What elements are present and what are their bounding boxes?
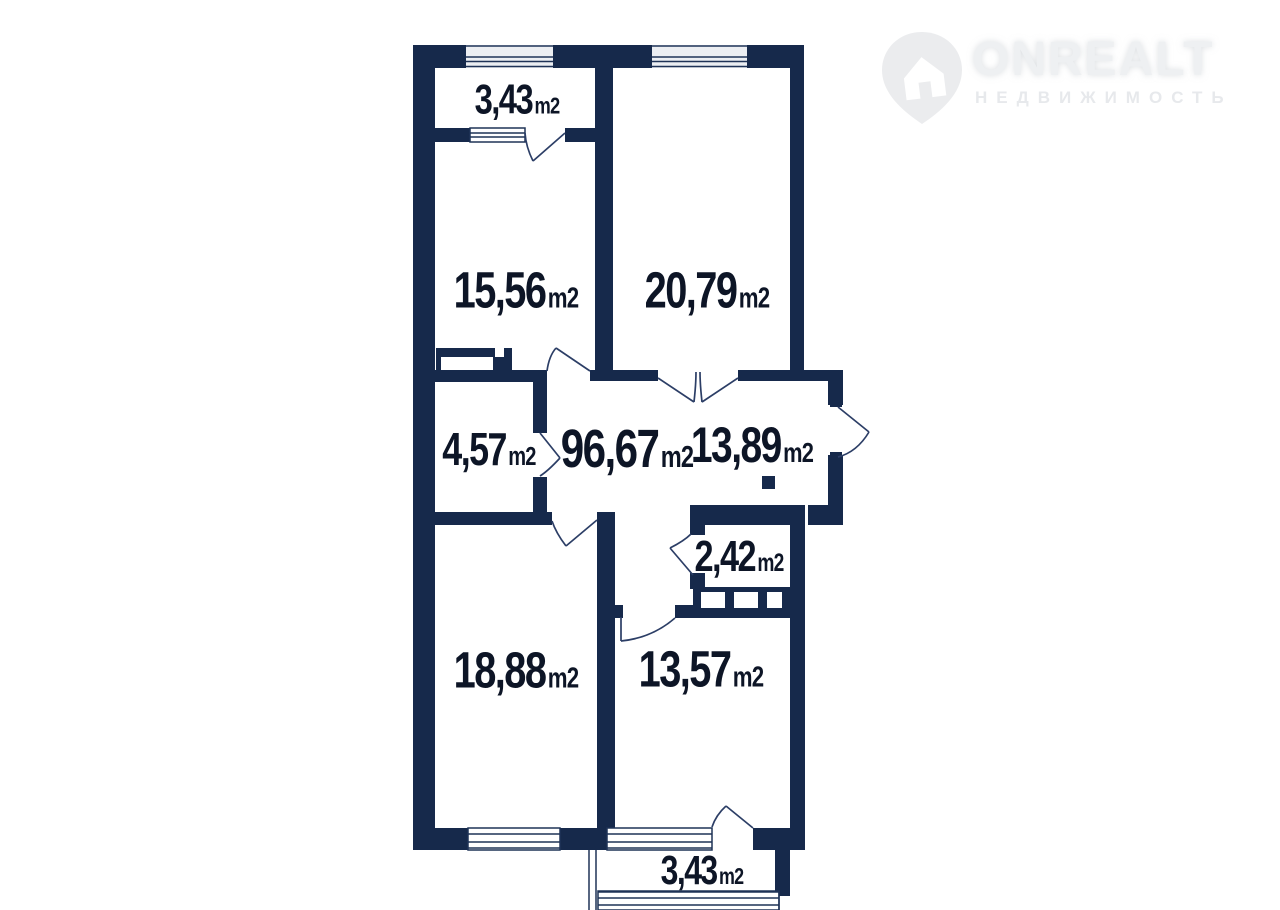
window <box>466 45 553 68</box>
area-value: 4,57 <box>442 423 506 475</box>
area-unit: m2 <box>508 443 535 471</box>
area-label-balcony-top: 3,43m2 <box>475 78 560 120</box>
area-label-total: 96,67m2 <box>561 422 693 476</box>
duct-niche <box>436 348 512 381</box>
area-unit: m2 <box>757 550 783 577</box>
duct-square <box>762 476 775 489</box>
outer-wall-top <box>553 45 652 68</box>
wall-between-rooms <box>595 68 613 372</box>
area-unit: m2 <box>661 441 694 474</box>
area-value: 96,67 <box>561 419 659 479</box>
area-unit: m2 <box>739 282 770 314</box>
hall-top-wall <box>738 370 843 381</box>
area-value: 13,57 <box>639 640 731 697</box>
entrance-wall-bottom <box>808 505 843 525</box>
door-jamb <box>830 401 842 407</box>
area-unit: m2 <box>548 662 579 694</box>
area-unit: m2 <box>783 437 813 468</box>
balcony-top-wall <box>435 128 470 142</box>
outer-wall-left <box>413 45 435 850</box>
wall-wc-right <box>533 477 547 514</box>
area-label-room-18-88: 18,88m2 <box>454 644 579 695</box>
area-label-room-4-57: 4,57m2 <box>442 426 535 472</box>
area-unit: m2 <box>534 92 559 118</box>
wall-cap <box>590 370 658 381</box>
area-label-room-13-57: 13,57m2 <box>639 643 764 694</box>
door-swing <box>712 806 753 828</box>
area-label-hall-13-89: 13,89m2 <box>691 420 813 470</box>
entrance-door-swing <box>838 407 869 457</box>
area-label-balcony-bottom: 3,43m2 <box>661 850 744 891</box>
area-unit: m2 <box>719 863 743 889</box>
balcony-wall-right <box>775 850 790 896</box>
window <box>470 128 525 142</box>
area-value: 20,79 <box>645 261 737 318</box>
outer-wall-bottom <box>753 828 805 850</box>
area-unit: m2 <box>733 661 764 693</box>
door-swing <box>658 372 696 402</box>
door-swings <box>525 133 869 828</box>
door-swing <box>540 433 560 476</box>
wall-between-rooms-lower <box>597 512 615 828</box>
area-unit: m2 <box>548 282 579 314</box>
door-swing <box>700 372 738 402</box>
door-swing <box>552 520 597 546</box>
area-label-room-15-56: 15,56m2 <box>454 264 579 315</box>
hall-bottom-wall <box>690 505 792 525</box>
outer-wall-bottom <box>413 828 468 850</box>
entrance-wall <box>828 455 843 510</box>
door-swing <box>525 133 565 161</box>
window <box>652 45 747 68</box>
door-swing <box>547 348 590 371</box>
door-swing <box>621 617 675 641</box>
entrance-wall <box>828 375 843 405</box>
vent-shaft <box>693 587 790 613</box>
window <box>468 828 560 850</box>
area-label-bath-2-42: 2,42m2 <box>694 535 783 579</box>
area-value: 18,88 <box>454 641 546 698</box>
area-value: 3,43 <box>475 75 533 122</box>
area-value: 3,43 <box>661 847 717 893</box>
door-swing <box>670 534 693 575</box>
outer-wall-right-upper <box>790 45 804 375</box>
area-value: 2,42 <box>694 532 755 581</box>
outer-wall-right-lower <box>790 505 805 850</box>
wall-mid-left-lower <box>413 512 552 525</box>
floor-plan-page: ONREALT НЕДВИЖИМОСТЬ <box>0 0 1280 910</box>
outer-wall-bottom <box>560 828 607 850</box>
room-13-57-top-wall <box>613 605 623 618</box>
outer-wall-top <box>413 45 466 68</box>
balcony-top-wall <box>565 128 597 142</box>
area-value: 15,56 <box>454 261 546 318</box>
area-value: 13,89 <box>691 417 781 473</box>
area-label-room-20-79: 20,79m2 <box>645 264 770 315</box>
